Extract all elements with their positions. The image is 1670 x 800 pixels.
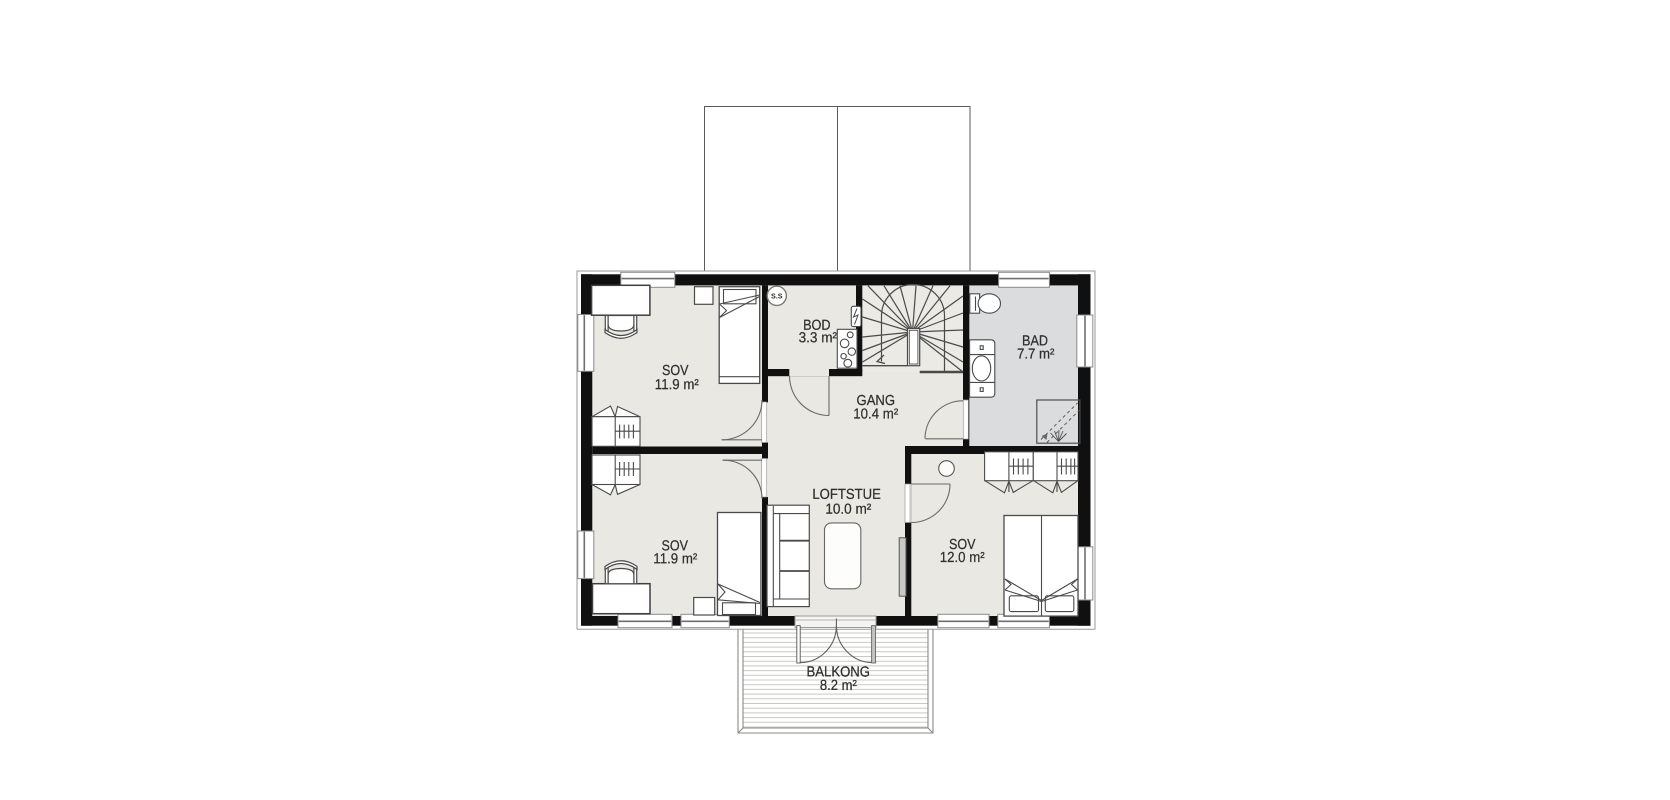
svg-text:11.9 m²: 11.9 m² [653,551,697,567]
svg-text:11.9 m²: 11.9 m² [655,377,699,393]
svg-text:12.0 m²: 12.0 m² [940,550,985,566]
svg-text:10.0 m²: 10.0 m² [825,502,871,518]
svg-text:10.4 m²: 10.4 m² [853,406,898,422]
svg-text:3.3 m²: 3.3 m² [799,330,838,346]
svg-text:7.7 m²: 7.7 m² [1017,347,1055,363]
svg-text:S.S: S.S [771,291,783,300]
svg-text:LOFTSTUE: LOFTSTUE [812,487,881,503]
svg-text:8.2 m²: 8.2 m² [820,678,857,694]
